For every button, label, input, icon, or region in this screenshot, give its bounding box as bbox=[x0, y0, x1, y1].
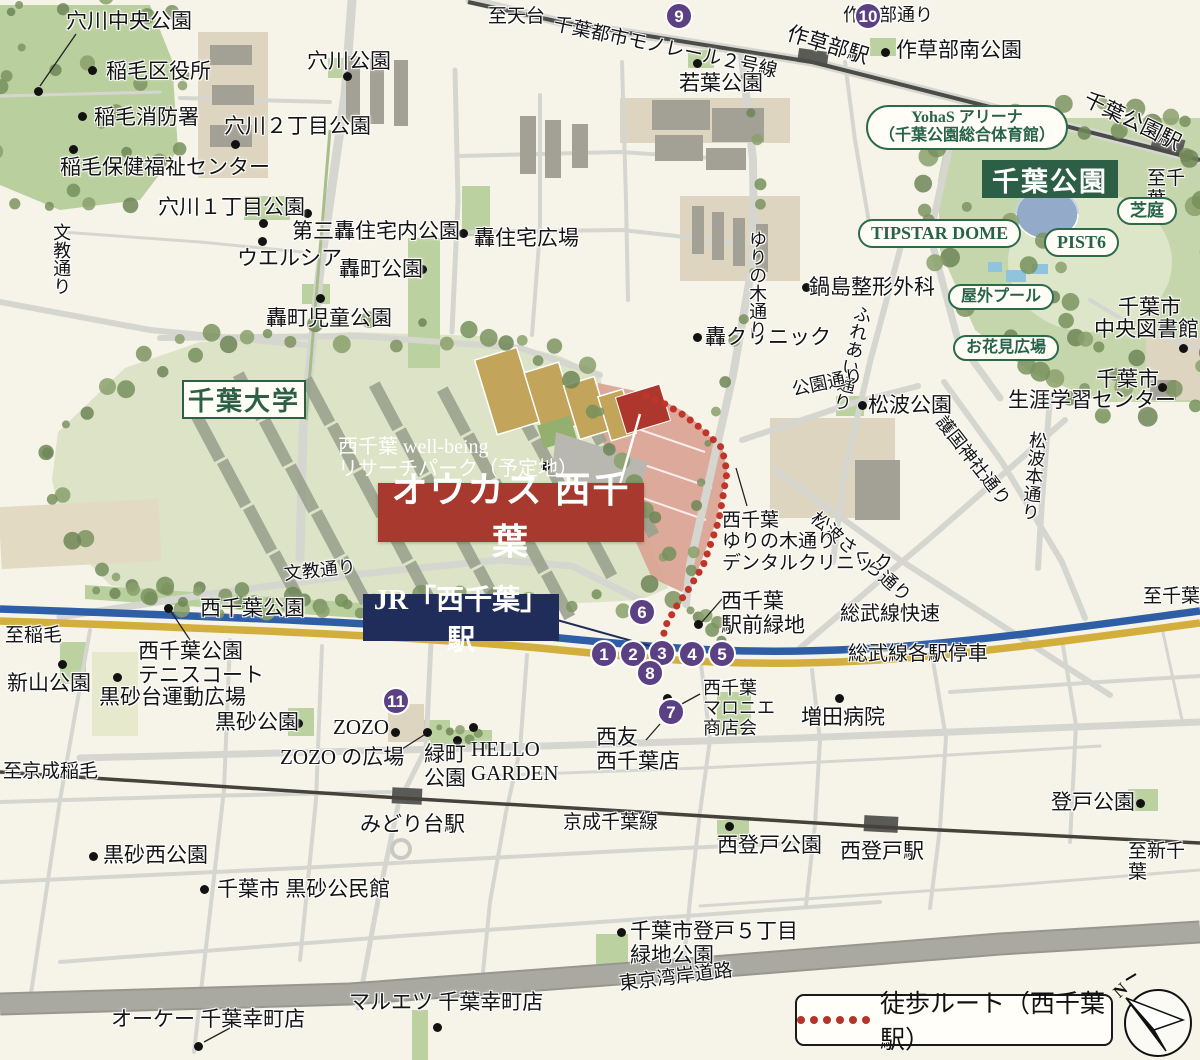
poi-dot bbox=[259, 219, 268, 228]
poi-dot bbox=[231, 140, 240, 149]
map-label: 稲毛区役所 bbox=[106, 60, 211, 84]
route-number-badge: 10 bbox=[854, 2, 882, 30]
legend-label: 徒歩ルート（西千葉駅） bbox=[880, 984, 1111, 1056]
map-label: オーケー 千葉幸町店 bbox=[111, 1008, 305, 1032]
legend: 徒歩ルート（西千葉駅） bbox=[795, 994, 1113, 1046]
map-label: 中央図書館 bbox=[1094, 318, 1199, 342]
map-label: 至新千葉 bbox=[1128, 841, 1200, 884]
map-label: みどり台駅 bbox=[360, 813, 465, 837]
map-label: 千葉市 bbox=[1118, 296, 1181, 320]
poi-dot bbox=[469, 723, 478, 732]
map-label: 至京成稲毛 bbox=[3, 761, 98, 782]
route-number-badge: 8 bbox=[636, 659, 664, 687]
poi-dot bbox=[316, 294, 325, 303]
map-label: 第三轟住宅内公園 bbox=[292, 220, 460, 244]
route-number-badge: 9 bbox=[665, 2, 693, 30]
map-label: 鍋島整形外科 bbox=[809, 276, 935, 300]
map-label: 松波本通り bbox=[1019, 430, 1048, 522]
map-label: 緑町 公園 bbox=[424, 743, 466, 790]
poi-dot bbox=[89, 852, 98, 861]
map-label: 稲毛消防署 bbox=[94, 106, 199, 130]
map-label: 西千葉 ゆりの木通り デンタルクリニック bbox=[722, 510, 893, 574]
map-label: 若葉公園 bbox=[679, 72, 763, 96]
map-label: 西登戸駅 bbox=[840, 840, 924, 864]
map-label: 松波公園 bbox=[868, 394, 952, 418]
chiba-university-label: 千葉大学 bbox=[182, 380, 306, 419]
map-label: 文教通り bbox=[283, 556, 357, 584]
route-number-badge: 7 bbox=[657, 698, 685, 726]
walking-route-swatch bbox=[797, 1016, 870, 1024]
label-overlay: 千葉大学 千葉公園 オウカス 西千葉 JR「西千葉」駅 徒歩ルート（西千葉駅） … bbox=[0, 0, 1200, 1060]
map-label: 作草部駅 bbox=[784, 22, 871, 69]
map-label: 穴川２丁目公園 bbox=[224, 115, 371, 139]
map-label: 西登戸公園 bbox=[717, 834, 822, 858]
poi-dot bbox=[423, 728, 432, 737]
map-label: マルエツ 千葉幸町店 bbox=[349, 991, 543, 1015]
map-label: 千葉市登戸５丁目 緑地公園 bbox=[630, 920, 798, 967]
map-label: 轟町公園 bbox=[339, 258, 423, 282]
poi-dot bbox=[1179, 344, 1188, 353]
route-number-badge: 5 bbox=[708, 640, 736, 668]
route-number-badge: 4 bbox=[678, 640, 706, 668]
facility-pill: お花見広場 bbox=[953, 335, 1059, 361]
map-label: 千葉公園駅 bbox=[1080, 88, 1185, 155]
map-label: 西千葉公園 テニスコート bbox=[138, 640, 264, 687]
map-label: 轟住宅広場 bbox=[474, 227, 579, 251]
map-label: ゆりの木通り bbox=[747, 230, 767, 338]
poi-dot bbox=[58, 660, 67, 669]
map-label: ZOZO bbox=[333, 716, 389, 740]
map-label: 西千葉公園 bbox=[200, 597, 305, 621]
map-label: 千葉市 黒砂公民館 bbox=[217, 878, 390, 902]
map-label: 穴川中央公園 bbox=[66, 10, 192, 34]
map-label: 黒砂公園 bbox=[215, 711, 299, 735]
poi-dot bbox=[693, 333, 702, 342]
oukas-nishichiba-label: オウカス 西千葉 bbox=[378, 483, 644, 542]
map-label: 京成千葉線 bbox=[563, 812, 658, 833]
poi-dot bbox=[617, 928, 626, 937]
poi-dot bbox=[194, 1042, 203, 1051]
map-label: 生涯学習センター bbox=[1008, 389, 1176, 413]
poi-dot bbox=[200, 885, 209, 894]
facility-pill: 屋外プール bbox=[948, 284, 1054, 310]
poi-dot bbox=[113, 673, 122, 682]
jr-nishichiba-station-label: JR「西千葉」駅 bbox=[363, 594, 559, 641]
map-label: 穴川公園 bbox=[307, 50, 391, 74]
map-label: 西千葉 駅前緑地 bbox=[721, 590, 805, 637]
route-number-badge: 1 bbox=[590, 640, 618, 668]
poi-dot bbox=[858, 401, 867, 410]
map: N 千葉大学 千葉公園 オウカス 西千葉 JR「西千葉」駅 徒歩ルート（西千葉駅… bbox=[0, 0, 1200, 1060]
map-label: 西千葉 well-being リサーチパーク（予定地） bbox=[338, 436, 578, 481]
poi-dot bbox=[34, 87, 43, 96]
poi-dot bbox=[1136, 799, 1145, 808]
map-label: 至稲毛 bbox=[5, 625, 62, 646]
poi-dot bbox=[881, 48, 890, 57]
poi-dot bbox=[164, 604, 173, 613]
map-label: 作草部南公園 bbox=[896, 39, 1022, 63]
facility-pill: YohaS アリーナ （千葉公園総合体育館） bbox=[866, 105, 1068, 150]
route-number-badge: 11 bbox=[382, 687, 410, 715]
map-label: 総武線各駅停車 bbox=[848, 643, 988, 665]
map-label: 穴川１丁目公園 bbox=[158, 196, 305, 220]
map-label: 総武線快速 bbox=[840, 603, 940, 625]
chiba-park-label: 千葉公園 bbox=[982, 160, 1118, 198]
map-label: ウエルシア bbox=[237, 247, 342, 271]
map-label: 増田病院 bbox=[801, 706, 885, 730]
map-label: 稲毛保健福祉センター bbox=[60, 156, 270, 180]
facility-pill: PIST6 bbox=[1044, 228, 1119, 257]
map-label: 轟町児童公園 bbox=[266, 307, 392, 331]
poi-dot bbox=[694, 620, 703, 629]
poi-dot bbox=[78, 112, 87, 121]
map-label: 西千葉 マロニエ 商店会 bbox=[703, 678, 775, 738]
poi-dot bbox=[725, 822, 734, 831]
map-label: 黒砂西公園 bbox=[103, 844, 208, 868]
facility-pill: TIPSTAR DOME bbox=[858, 219, 1021, 248]
map-label: 轟クリニック bbox=[705, 326, 831, 350]
poi-dot bbox=[433, 1023, 442, 1032]
facility-pill: 芝庭 bbox=[1117, 197, 1177, 225]
poi-dot bbox=[835, 694, 844, 703]
poi-dot bbox=[391, 728, 400, 737]
poi-dot bbox=[69, 145, 78, 154]
map-label: 文教通り bbox=[51, 223, 71, 295]
map-label: 至千葉 bbox=[1143, 586, 1200, 607]
map-label: 新山公園 bbox=[7, 672, 91, 696]
map-label: 至天台 bbox=[488, 6, 545, 27]
map-label: HELLO GARDEN bbox=[471, 738, 559, 785]
map-label: ZOZO の広場 bbox=[280, 746, 404, 770]
map-label: 黒砂台運動広場 bbox=[99, 686, 246, 710]
map-label: 護国神社通り bbox=[932, 412, 1014, 510]
map-label: 西友 西千葉店 bbox=[596, 726, 680, 773]
poi-dot bbox=[258, 237, 267, 246]
map-label: 登戸公園 bbox=[1051, 791, 1135, 815]
route-number-badge: 6 bbox=[628, 598, 656, 626]
poi-dot bbox=[88, 66, 97, 75]
